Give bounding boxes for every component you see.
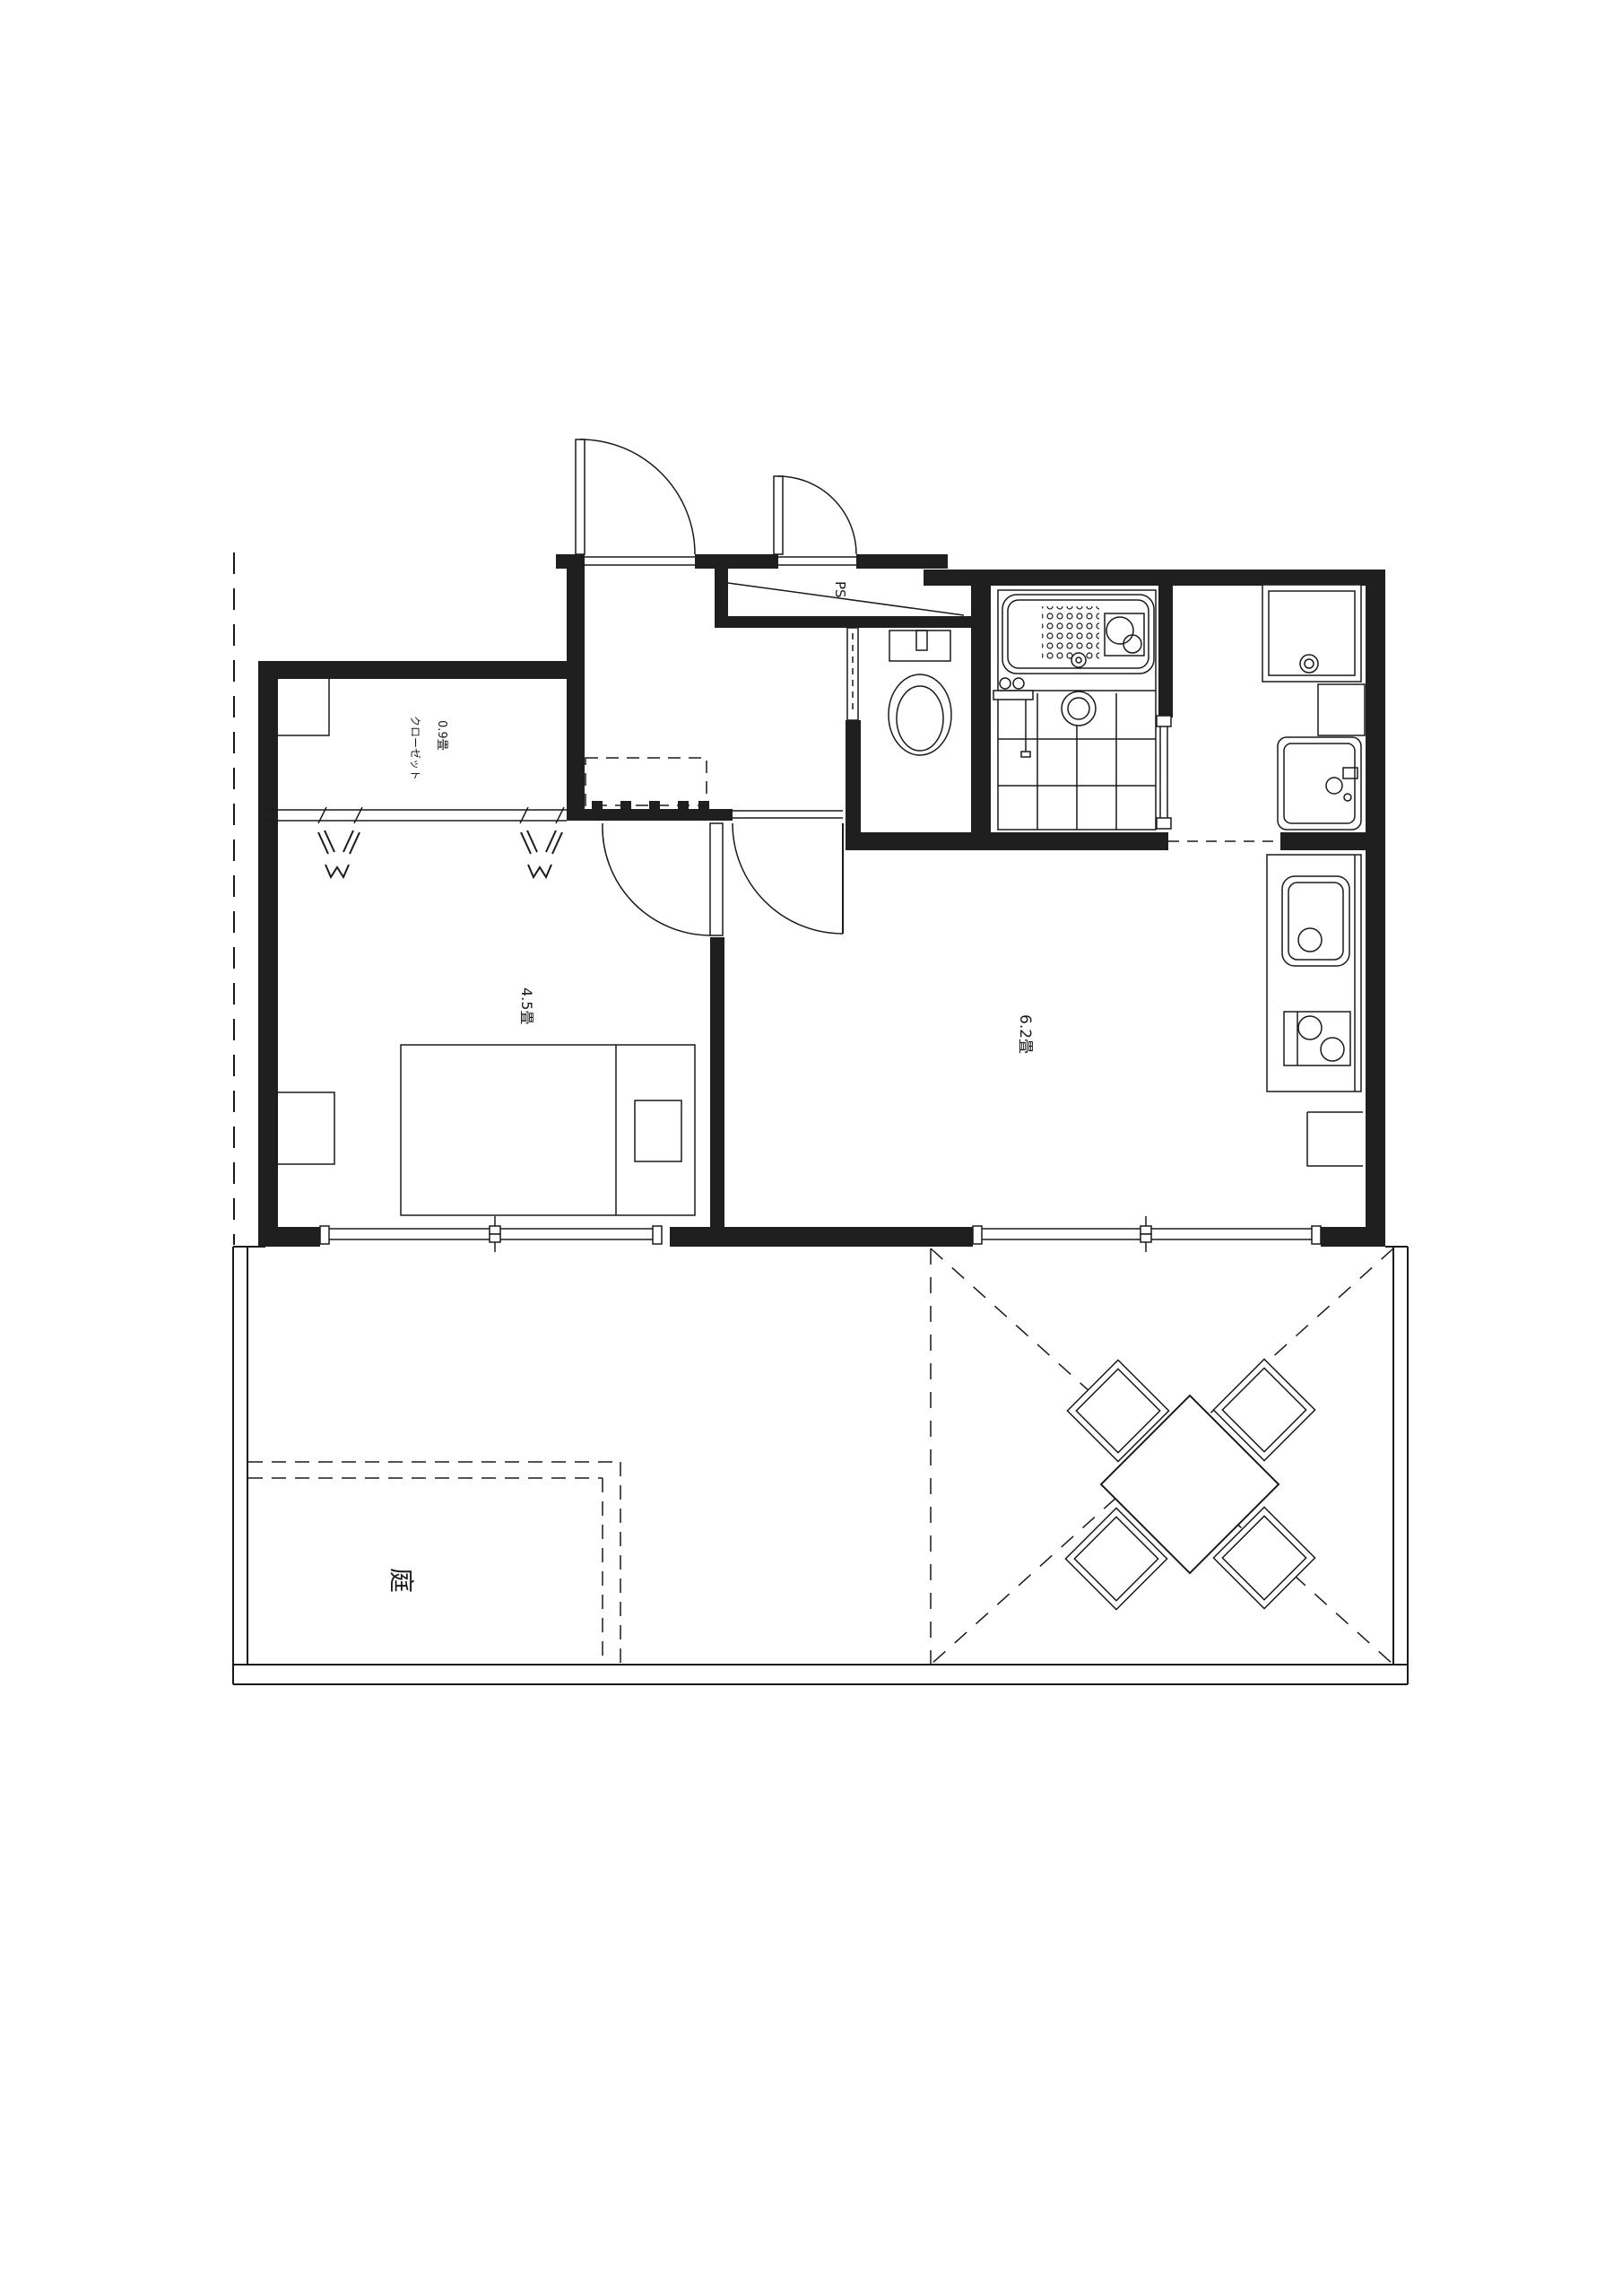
ps-label: PS xyxy=(832,581,848,598)
bath-door xyxy=(1157,716,1171,829)
wall-bottom-a xyxy=(265,1227,320,1247)
wall-bath-bottom-b xyxy=(1280,832,1366,850)
closet-size-label: 0.9畳 xyxy=(435,720,448,751)
wall-entry-left xyxy=(567,554,585,821)
washroom xyxy=(1262,585,1365,830)
fridge-nook xyxy=(1307,1112,1363,1166)
bedroom-door-leaf xyxy=(710,823,723,935)
wall-bath-wash-divider xyxy=(1158,586,1173,717)
toilet-tank xyxy=(889,631,950,661)
wall-bath-bottom-a xyxy=(846,832,1168,850)
bathtub-antislip-dots xyxy=(1042,606,1099,662)
kitchen-door-swing xyxy=(733,823,843,934)
bifold-symbol-left xyxy=(318,831,360,877)
garden-boundary-dashed xyxy=(248,1462,620,1665)
wall-toilet-bath xyxy=(971,586,991,850)
floor-plan-page: PS 0.9畳 クローゼット xyxy=(0,0,1622,2296)
bifold-symbol-right xyxy=(521,831,562,877)
bedroom-side-table xyxy=(276,1092,334,1164)
toilet-room xyxy=(847,628,951,755)
bathroom xyxy=(993,590,1280,841)
bed xyxy=(401,1045,695,1215)
bathtub-faucet-panel xyxy=(1105,613,1144,656)
shower-fixture xyxy=(993,678,1033,757)
wall-left-outer xyxy=(258,661,278,1247)
closet-area: 0.9畳 クローゼット xyxy=(265,679,567,877)
living-size-label: 6.2畳 xyxy=(1016,1014,1034,1054)
ps-door-swing xyxy=(778,476,856,554)
wall-bottom-c xyxy=(1321,1227,1385,1247)
entry-door-swing xyxy=(580,439,695,554)
washroom-counter xyxy=(1318,684,1365,735)
entry-shelf-ticks xyxy=(592,801,709,809)
wall-bottom-b xyxy=(670,1227,973,1247)
terrace-table-set xyxy=(1065,1359,1314,1609)
kitchen-counter xyxy=(1267,855,1361,1091)
bath-floor-drain xyxy=(1062,691,1096,726)
bedroom-window xyxy=(320,1216,662,1252)
living-kitchen: 6.2畳 xyxy=(1016,855,1363,1166)
bedroom-door-swing xyxy=(603,823,710,935)
bedroom: 4.5畳 xyxy=(276,987,695,1215)
bedroom-size-label: 4.5畳 xyxy=(518,987,535,1024)
wall-top-bath xyxy=(924,570,1385,586)
closet-notch xyxy=(278,679,329,735)
wall-entry-bottom xyxy=(571,809,733,821)
closet-name-label: クローゼット xyxy=(409,716,421,780)
garden-label: 庭 xyxy=(386,1568,416,1593)
wall-ps-bottom xyxy=(715,616,971,628)
terrace: 庭 xyxy=(233,1247,1408,1684)
entry-door-leaf xyxy=(576,439,585,554)
bathtub-drain xyxy=(1071,653,1086,667)
wall-toilet-left xyxy=(846,720,861,850)
entry-shelf-dashed xyxy=(585,758,707,805)
living-window xyxy=(973,1216,1321,1252)
floor-plan-drawing: PS 0.9畳 クローゼット xyxy=(0,0,1622,2296)
wall-closet-top xyxy=(258,661,585,679)
washbasin xyxy=(1278,737,1361,830)
wall-right-outer xyxy=(1366,570,1385,1247)
ps-door-leaf xyxy=(774,476,783,554)
wall-room-divider xyxy=(710,937,724,1247)
